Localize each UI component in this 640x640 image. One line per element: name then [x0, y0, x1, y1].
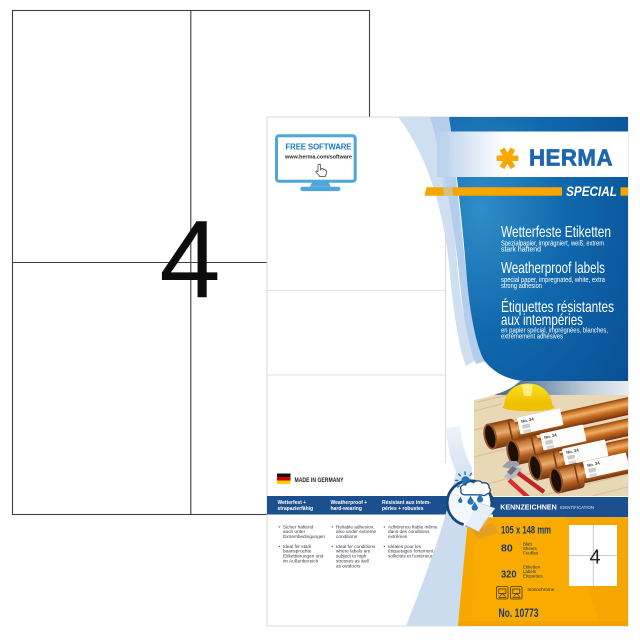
- svg-text:conditions: conditions: [336, 534, 358, 539]
- svg-text:Weatherproof labels: Weatherproof labels: [501, 260, 605, 277]
- svg-text:extrêmement adhésives: extrêmement adhésives: [501, 334, 563, 341]
- svg-text:320: 320: [501, 568, 517, 580]
- svg-text:monochrome: monochrome: [528, 587, 555, 592]
- svg-text:péries + robustes: péries + robustes: [382, 506, 424, 512]
- svg-text:FREE SOFTWARE: FREE SOFTWARE: [286, 142, 352, 151]
- svg-text:extrêmes: extrêmes: [388, 534, 408, 539]
- svg-text:strapazierfähig: strapazierfähig: [278, 506, 314, 512]
- svg-text:Étiquettes: Étiquettes: [523, 574, 543, 579]
- svg-text:as outdoors: as outdoors: [336, 563, 361, 568]
- svg-text:4: 4: [589, 547, 600, 569]
- svg-text:SPECIAL: SPECIAL: [566, 184, 617, 199]
- svg-text:MADE IN GERMANY: MADE IN GERMANY: [295, 477, 345, 484]
- svg-text:105 x 148 mm: 105 x 148 mm: [501, 525, 551, 537]
- svg-text:Extrembedingungen: Extrembedingungen: [283, 534, 325, 539]
- svg-text:www.herma.com/software: www.herma.com/software: [284, 155, 352, 161]
- svg-text:4: 4: [159, 198, 220, 321]
- svg-text:Feuilles: Feuilles: [523, 551, 539, 556]
- svg-text:sollicités et l'extérieur: sollicités et l'extérieur: [388, 554, 433, 559]
- svg-text:im Außenbereich: im Außenbereich: [283, 559, 319, 564]
- svg-text:80: 80: [501, 543, 513, 555]
- svg-text:HERMA: HERMA: [529, 145, 613, 171]
- svg-text:No. 10773: No. 10773: [499, 608, 539, 620]
- svg-text:stark haftend: stark haftend: [501, 247, 541, 254]
- svg-text:Wetterfeste Etiketten: Wetterfeste Etiketten: [501, 224, 611, 241]
- svg-text:strong adhesion: strong adhesion: [501, 283, 542, 290]
- svg-text:IDENTIFICATION: IDENTIFICATION: [560, 505, 594, 510]
- svg-text:KENNZEICHNEN: KENNZEICHNEN: [500, 503, 557, 512]
- svg-text:hard-wearing: hard-wearing: [331, 506, 362, 512]
